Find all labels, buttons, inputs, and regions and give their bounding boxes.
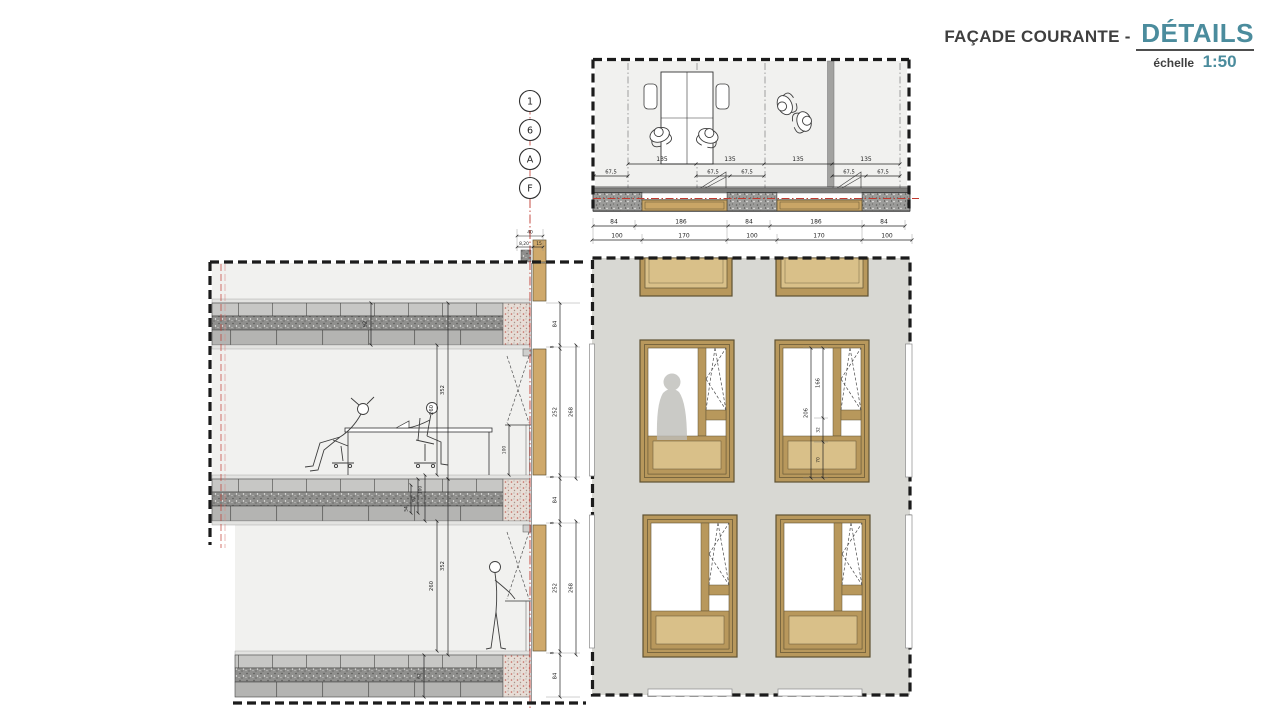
section-room-upper <box>212 349 530 475</box>
dim-label: 135 <box>656 156 668 163</box>
plan-view: 135 135 135 135 67,5 67,5 67,5 67,5 67,5… <box>592 60 919 245</box>
dim-label: 135 <box>724 156 736 163</box>
section-window-frame <box>533 349 546 475</box>
dim-label: 268 <box>569 583 575 593</box>
axis-bubble-label: F <box>527 184 532 195</box>
drawing-title: FAÇADE COURANTE - DÉTAILS <box>944 20 1254 46</box>
dim-label: 8 <box>550 345 556 348</box>
dim-label: 84 <box>745 219 753 226</box>
grid-axis-bubbles: 1 6 A F <box>520 90 541 199</box>
dim-label: 32 <box>816 427 822 433</box>
facade-window <box>775 340 869 482</box>
axis-bubble-label: A <box>527 155 534 166</box>
scale-line: échelle 1:50 <box>1136 49 1254 71</box>
dim-label: 8 <box>550 521 556 524</box>
plan-window-frame <box>642 200 727 211</box>
dim-label: 84 <box>553 496 559 503</box>
axis-bubble-label: 1 <box>527 97 533 108</box>
title-prefix: FAÇADE COURANTE - <box>944 27 1130 46</box>
dim-label: 206 <box>804 408 810 418</box>
plan-pier <box>862 193 910 212</box>
facade-window <box>643 515 737 657</box>
dim-label: 62 <box>417 673 423 679</box>
dim-label: 135 <box>860 156 872 163</box>
title-emphasis: DÉTAILS <box>1141 18 1254 48</box>
facade-sill-notch <box>648 689 732 696</box>
facade-window-partial <box>640 258 732 296</box>
facade-window <box>776 515 870 657</box>
dim-label: 186 <box>810 219 822 226</box>
dim-label: 15 <box>536 241 542 247</box>
height-dim-chain: 84 8 252 8 84 8 252 8 84 268 268 <box>546 303 580 697</box>
dim-label: 100 <box>418 486 424 495</box>
dim-label: 8 <box>550 475 556 478</box>
dim-label: 62 <box>411 496 417 502</box>
dim-label: 70 <box>816 457 822 463</box>
section-room-lower <box>235 525 530 651</box>
plan-chair <box>644 84 657 109</box>
plan-chair <box>716 84 729 109</box>
scale-value: 1:50 <box>1203 52 1237 71</box>
dim-label: 252 <box>553 583 559 593</box>
dim-label: 84 <box>610 219 618 226</box>
dim-label: 84 <box>553 320 559 327</box>
dim-label: 67,5 <box>877 170 889 176</box>
dim-label: 8,20 <box>519 241 529 247</box>
architectural-drawing: 1 6 A F <box>0 0 1280 720</box>
dim-label: 352 <box>440 385 446 395</box>
drawing-sheet: 1 6 A F <box>0 0 1280 720</box>
dim-label: 67,5 <box>605 170 617 176</box>
plan-wall-assembly <box>593 187 919 211</box>
facade-window-partial <box>776 258 868 296</box>
dim-label: 100 <box>881 233 893 240</box>
dim-label: 268 <box>569 407 575 417</box>
dim-label: 8 <box>550 651 556 654</box>
dim-label: 186 <box>675 219 687 226</box>
dim-label: 260 <box>429 581 435 591</box>
title-block: FAÇADE COURANTE - DÉTAILS échelle 1:50 <box>944 20 1254 71</box>
dim-label: 252 <box>553 407 559 417</box>
dim-label: 40 <box>527 230 533 236</box>
section-slab-middle <box>212 475 530 525</box>
facade-window <box>640 340 734 482</box>
section-slab-bottom <box>235 651 530 697</box>
plan-pier <box>593 193 642 212</box>
dim-label: 170 <box>813 233 825 240</box>
dim-label: 100 <box>502 446 508 455</box>
section-window-frame <box>533 525 546 651</box>
dim-label: 84 <box>880 219 888 226</box>
dim-label: 92 <box>363 321 369 328</box>
dim-label: 67,5 <box>707 170 719 176</box>
plan-pier <box>727 193 777 212</box>
dim-label: 54 <box>404 506 410 512</box>
facade-sill-notch <box>778 689 862 696</box>
dim-label: 100 <box>746 233 758 240</box>
dim-label: 352 <box>440 561 446 571</box>
dim-label: 166 <box>816 378 822 388</box>
plan-window-frame <box>777 200 862 211</box>
scale-label: échelle <box>1153 56 1194 70</box>
dim-label: 260 <box>429 405 435 415</box>
dim-label: 67,5 <box>843 170 855 176</box>
dim-label: 170 <box>678 233 690 240</box>
plan-partition-wall <box>828 61 835 187</box>
dim-label: 135 <box>792 156 804 163</box>
facade-elevation: 206 166 32 70 <box>590 258 913 696</box>
axis-bubble-label: 6 <box>527 126 533 137</box>
dim-label: 100 <box>611 233 623 240</box>
plan-interior <box>595 61 907 187</box>
dim-label: 84 <box>553 672 559 679</box>
dim-label: 67,5 <box>741 170 753 176</box>
section-view: 92 352 260 100 100 62 54 352 260 62 40 8… <box>210 199 586 708</box>
